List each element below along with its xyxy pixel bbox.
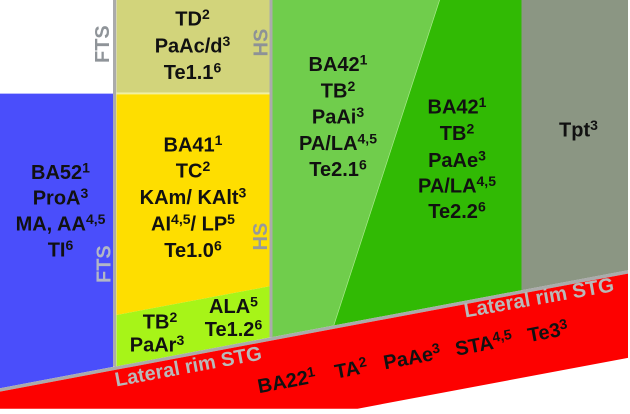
svg-text:Te2.16: Te2.16 [309, 157, 367, 182]
svg-text:AI4,5/ LP5: AI4,5/ LP5 [151, 211, 235, 236]
svg-text:PaAc/d3: PaAc/d3 [155, 33, 231, 58]
svg-text:Te1.06: Te1.06 [164, 238, 222, 263]
svg-text:Te1.26: Te1.26 [205, 317, 263, 342]
svg-text:Te1.16: Te1.16 [164, 60, 222, 85]
svg-text:BA421: BA421 [309, 52, 368, 77]
svg-text:FTS: FTS [92, 25, 114, 63]
svg-text:ProA3: ProA3 [33, 185, 89, 210]
svg-text:PaAr3: PaAr3 [130, 332, 185, 357]
svg-text:Te2.26: Te2.26 [428, 199, 486, 224]
svg-text:BA521: BA521 [31, 160, 90, 185]
svg-text:BA421: BA421 [428, 94, 487, 119]
svg-text:HS: HS [250, 223, 272, 251]
svg-text:PaAe3: PaAe3 [428, 147, 486, 172]
svg-text:BA411: BA411 [164, 132, 223, 157]
svg-text:FTS: FTS [94, 245, 116, 283]
svg-text:KAm/ KAlt3: KAm/ KAlt3 [140, 185, 247, 210]
svg-text:HS: HS [251, 29, 273, 57]
